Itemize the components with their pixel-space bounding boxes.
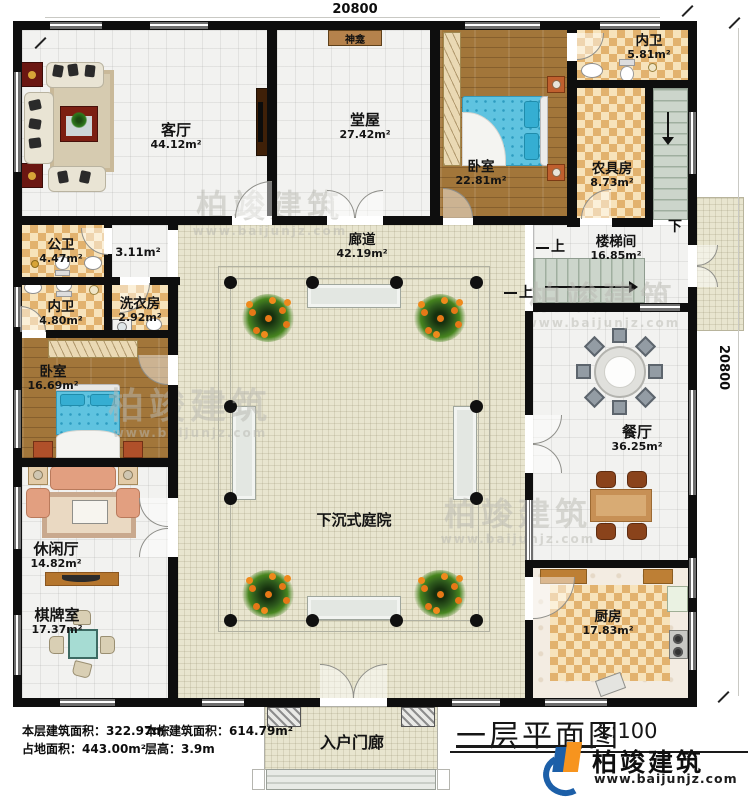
column: [470, 276, 483, 289]
floor-drain: [31, 260, 39, 268]
column: [224, 614, 237, 627]
mainhall-area: 27.42m²: [339, 129, 390, 141]
bedroom-top-name: 卧室: [455, 160, 506, 175]
dining-chair-wood: [596, 523, 616, 540]
window: [50, 22, 102, 29]
stair-up-label: 上: [551, 236, 565, 256]
window: [202, 699, 244, 706]
dimension-line-right: [738, 28, 739, 696]
wall: [645, 88, 653, 218]
wardrobe: [48, 340, 138, 358]
sofa-pillow: [84, 65, 95, 78]
room-label-bath-left: 内卫 4.80m²: [39, 300, 82, 327]
toolroom-name: 农具房: [590, 162, 633, 177]
wall: [13, 21, 697, 30]
sofa-pillow: [28, 137, 41, 148]
wall: [13, 277, 112, 285]
bedroom-left-area: 16.69m²: [27, 380, 78, 392]
room-label-laundry: 洗衣房 2.92m²: [118, 297, 161, 324]
nightstand: [33, 441, 53, 458]
leisure-table: [72, 500, 108, 524]
floorplan-canvas: 20800 20800: [0, 0, 750, 803]
window: [600, 22, 660, 29]
window: [14, 390, 21, 448]
public-bath-name: 公卫: [39, 238, 82, 253]
room-label-bedroom-top: 卧室 22.81m²: [455, 160, 506, 187]
wall: [473, 216, 577, 225]
chess-area: 17.37m²: [31, 624, 82, 636]
potted-plant: [412, 292, 468, 344]
window: [150, 22, 208, 29]
table-lamp: [123, 470, 133, 480]
end-table-inlay: [28, 172, 36, 180]
column: [470, 492, 483, 505]
courtyard-planter-right: [453, 406, 477, 500]
stair-up-label: 上: [519, 282, 533, 302]
wall: [577, 80, 688, 88]
stair-arrow-line: [545, 286, 631, 288]
nightstand-lamp: [552, 168, 561, 177]
stair-arrow-line: [667, 112, 669, 138]
potted-plant: [240, 568, 296, 620]
bedroom-left-name: 卧室: [27, 365, 78, 380]
toilet-tank: [55, 270, 70, 276]
sofa-pillow: [67, 63, 79, 76]
stairwell-area: 16.85m²: [590, 250, 641, 262]
bed-pillow: [524, 101, 539, 128]
room-label-mainhall: 堂屋 27.42m²: [339, 112, 390, 141]
stair-arrow-head: [629, 281, 638, 293]
stairwell-name: 楼梯间: [590, 235, 641, 250]
window: [14, 72, 21, 172]
dining-rect-table-top: [596, 495, 646, 516]
wall: [525, 620, 533, 698]
wall: [525, 473, 533, 500]
bath-left-area: 4.80m²: [39, 315, 82, 327]
dining-chair: [576, 364, 591, 379]
wall: [13, 216, 232, 225]
living-area: 44.12m²: [150, 139, 201, 151]
window: [545, 699, 607, 706]
window: [60, 699, 115, 706]
courtyard-planter-left: [232, 406, 256, 500]
dimension-tick: [717, 691, 729, 703]
public-bath-area: 4.47m²: [39, 253, 82, 265]
window: [14, 487, 21, 549]
bath-left-name: 内卫: [39, 300, 82, 315]
brand-logo-icon: [545, 742, 589, 790]
wall: [13, 330, 20, 338]
living-name: 客厅: [150, 122, 201, 139]
leisure-name: 休闲厅: [30, 541, 81, 558]
kitchen-area: 17.83m²: [582, 625, 633, 637]
room-label-corridor: 廊道 42.19m²: [336, 233, 387, 260]
column: [306, 276, 319, 289]
shower-head: [89, 285, 99, 295]
sink: [84, 256, 102, 270]
dining-chair: [612, 400, 627, 415]
wall: [533, 560, 688, 568]
porch-step-side: [252, 769, 265, 790]
room-label-living: 客厅 44.12m²: [150, 122, 201, 151]
toilet-tank: [56, 291, 72, 297]
kitchen-name: 厨房: [582, 610, 633, 625]
mainhall-name: 堂屋: [339, 112, 390, 129]
room-label-public-bath: 公卫 4.47m²: [39, 238, 82, 265]
wall: [150, 277, 180, 285]
window: [525, 500, 533, 560]
leisure-area: 14.82m²: [30, 558, 81, 570]
room-label-kitchen: 厨房 17.83m²: [582, 610, 633, 637]
room-label-leisure: 休闲厅 14.82m²: [30, 541, 81, 570]
chess-name: 棋牌室: [31, 607, 82, 624]
chair: [49, 636, 64, 654]
porch-name: 入户门廊: [320, 734, 384, 752]
table-lamp: [33, 470, 43, 480]
window: [465, 22, 540, 29]
bed-pillow: [524, 133, 539, 160]
stair-flight-vertical: [653, 88, 688, 220]
dimension-line-top: [45, 17, 660, 18]
column: [470, 400, 483, 413]
leisure-sofa: [50, 466, 116, 490]
stair-mark: [504, 292, 517, 294]
stat-building-area: 本栋建筑面积：614.79m²: [145, 722, 293, 739]
stair-mark: [536, 247, 549, 249]
dining-chair: [612, 328, 627, 343]
sofa-pillow: [28, 118, 41, 130]
room-label-dining: 餐厅 36.25m²: [611, 424, 662, 453]
drawing-scale: 1:100: [597, 719, 658, 743]
tv-screen: [62, 575, 100, 582]
wall: [46, 330, 168, 338]
wall: [383, 216, 443, 225]
column: [470, 614, 483, 627]
window: [689, 112, 696, 174]
room-label-stairwell: 楼梯间 16.85m²: [590, 235, 641, 262]
wardrobe: [443, 32, 461, 166]
bed-headboard: [540, 96, 548, 166]
wall: [567, 218, 580, 227]
corridor-name: 廊道: [336, 233, 387, 248]
stair-arrow-head: [662, 137, 674, 145]
porch-pier-hatch: [401, 707, 435, 727]
shrine: 神龛: [328, 30, 382, 46]
window: [14, 615, 21, 675]
room-label-toolroom: 农具房 8.73m²: [590, 162, 633, 189]
wall: [612, 218, 653, 227]
courtyard-planter-top: [307, 284, 401, 308]
wall: [525, 311, 533, 415]
wall: [112, 277, 120, 285]
nightstand: [123, 441, 143, 458]
end-table-inlay: [28, 71, 36, 79]
floor-toolroom: [577, 88, 645, 218]
dining-chair-wood: [627, 471, 647, 488]
wall: [168, 277, 178, 355]
room-label-bedroom-left: 卧室 16.69m²: [27, 365, 78, 392]
stair-down-label: 下: [668, 216, 682, 236]
porch-steps: [266, 769, 436, 790]
column: [390, 614, 403, 627]
bath-top-name: 内卫: [627, 34, 670, 49]
table-plant: [71, 112, 87, 128]
column: [306, 614, 319, 627]
bed-pillow: [90, 394, 115, 406]
potted-plant: [412, 568, 468, 620]
kitchen-counter: [643, 569, 673, 584]
sofa-pillow: [57, 170, 69, 184]
room-label-bath-top: 内卫 5.81m²: [627, 34, 670, 61]
leisure-armchair: [26, 488, 50, 518]
toolroom-area: 8.73m²: [590, 177, 633, 189]
sofa-pillow: [52, 64, 64, 78]
wall: [13, 458, 168, 467]
wall: [168, 385, 178, 498]
window: [689, 558, 696, 598]
small-hall-area: 3.11m²: [115, 246, 160, 259]
room-label-small-hall: 3.11m²: [115, 246, 160, 259]
bedroom-top-area: 22.81m²: [455, 175, 506, 187]
room-label-chess: 棋牌室 17.37m²: [31, 607, 82, 636]
shower-head: [648, 63, 657, 72]
window: [689, 390, 696, 495]
stat-land-area: 占地面积：443.00m²: [22, 740, 146, 757]
dimension-tick: [681, 5, 693, 17]
column: [224, 492, 237, 505]
wall: [168, 557, 178, 698]
nightstand-lamp: [552, 80, 561, 89]
dining-name: 餐厅: [611, 424, 662, 441]
sink: [581, 63, 603, 78]
corridor-area: 42.19m²: [336, 248, 387, 260]
brand-website: www.baijunjz.com: [594, 771, 738, 786]
room-label-courtyard: 下沉式庭院: [316, 512, 391, 529]
leisure-armchair: [116, 488, 140, 518]
dimension-right: 20800: [716, 345, 731, 390]
wall: [168, 216, 178, 230]
door-opening: [688, 245, 697, 287]
sofa-bottom: [48, 166, 106, 192]
porch-step-side: [437, 769, 450, 790]
refrigerator: [667, 586, 688, 612]
window: [640, 304, 680, 311]
bath-top-area: 5.81m²: [627, 49, 670, 61]
window: [452, 699, 500, 706]
wall: [272, 216, 327, 225]
wall: [525, 560, 533, 577]
window: [689, 612, 696, 670]
dining-chair: [648, 364, 663, 379]
shrine-label: 神龛: [345, 31, 365, 46]
courtyard-name: 下沉式庭院: [316, 512, 391, 529]
dining-chair-wood: [596, 471, 616, 488]
potted-plant: [240, 292, 296, 344]
dining-chair-wood: [627, 523, 647, 540]
dimension-top: 20800: [332, 2, 377, 17]
courtyard-planter-bottom: [307, 596, 401, 620]
stove-burner: [673, 647, 683, 657]
laundry-area: 2.92m²: [118, 312, 161, 324]
chair: [100, 636, 115, 654]
bed-pillow: [60, 394, 85, 406]
dining-area: 36.25m²: [611, 441, 662, 453]
tv-screen: [258, 102, 263, 142]
column: [224, 276, 237, 289]
wall: [387, 698, 697, 707]
column: [390, 276, 403, 289]
laundry-name: 洗衣房: [118, 297, 161, 312]
column: [224, 400, 237, 413]
bed-blanket: [56, 430, 120, 458]
stat-floor-height: 层高：3.9m: [145, 740, 215, 757]
wall: [430, 30, 440, 218]
dining-round-table-inner: [604, 356, 636, 388]
stove-burner: [673, 634, 683, 644]
door-opening: [567, 33, 577, 61]
room-label-porch: 入户门廊: [320, 734, 384, 752]
